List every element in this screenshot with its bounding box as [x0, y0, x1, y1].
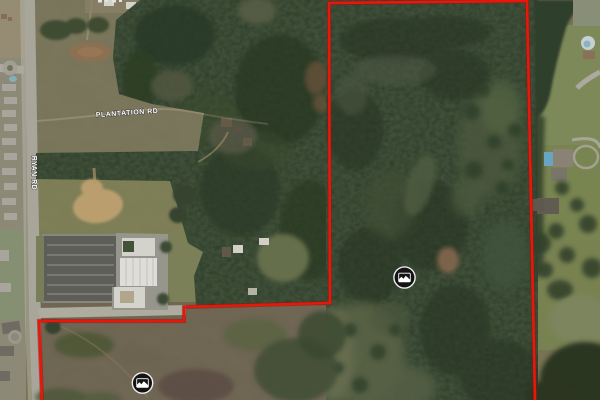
- svg-text:RYAN RD: RYAN RD: [30, 156, 37, 191]
